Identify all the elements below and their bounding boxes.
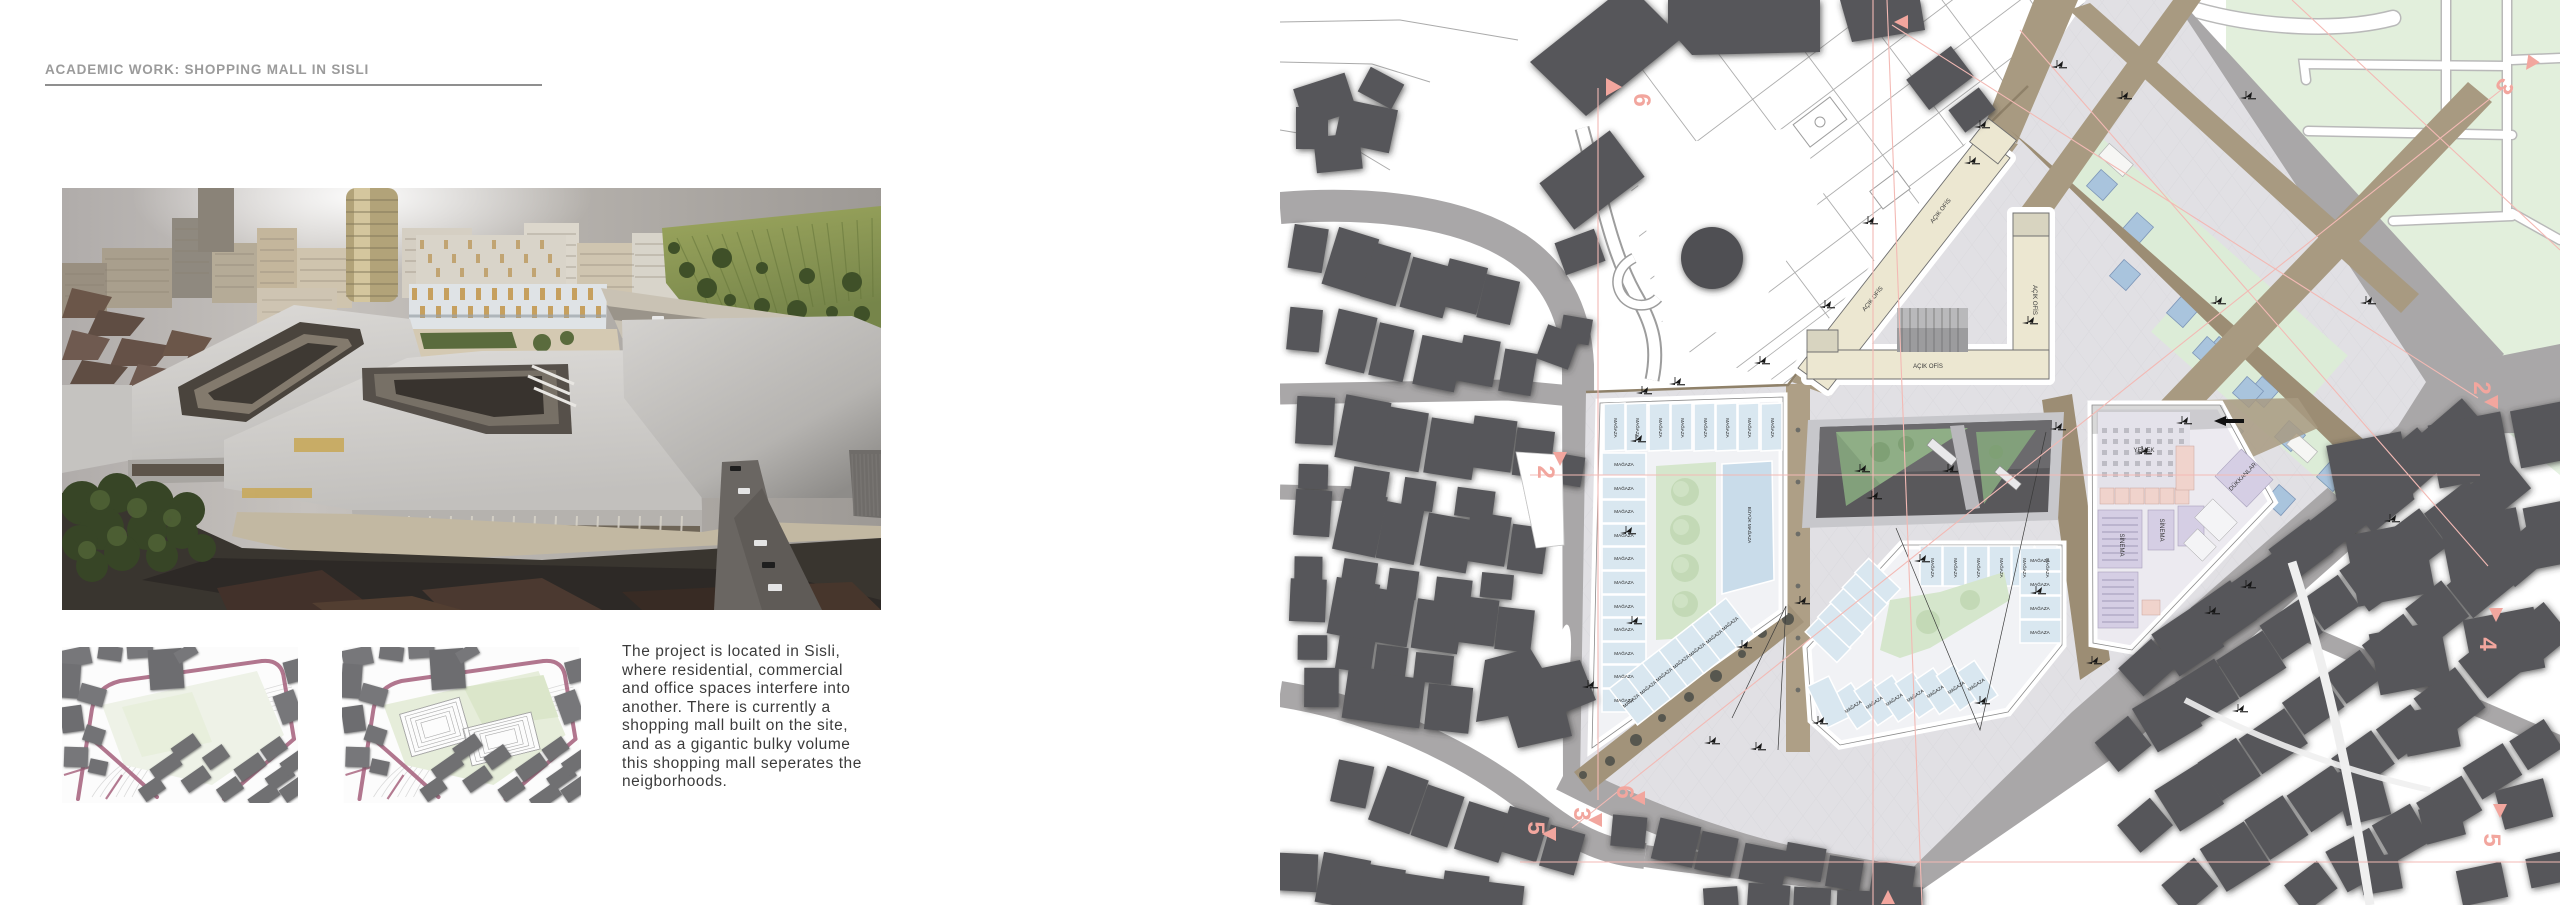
svg-text:4: 4 [2474, 637, 2501, 651]
svg-text:MAĞAZA: MAĞAZA [1680, 418, 1686, 438]
svg-text:AÇIK OFİS: AÇIK OFİS [1913, 363, 1943, 370]
svg-text:3: 3 [1568, 807, 1595, 820]
svg-text:MAĞAZA: MAĞAZA [2030, 557, 2050, 563]
svg-text:MAĞAZA: MAĞAZA [1770, 418, 1776, 438]
svg-text:MAĞAZA: MAĞAZA [1747, 418, 1753, 438]
svg-text:5: 5 [2478, 833, 2505, 846]
svg-text:MAĞAZA: MAĞAZA [1614, 461, 1634, 467]
svg-text:MAĞAZA: MAĞAZA [1930, 558, 1936, 578]
svg-text:5: 5 [1522, 821, 1549, 834]
svg-text:MAĞAZA: MAĞAZA [1976, 558, 1982, 578]
svg-text:MAĞAZA: MAĞAZA [1614, 673, 1634, 679]
svg-text:MAĞAZA: MAĞAZA [1614, 650, 1634, 656]
svg-text:6: 6 [1628, 93, 1655, 106]
svg-text:MAĞAZA: MAĞAZA [1999, 558, 2005, 578]
svg-text:AÇIK OFİS: AÇIK OFİS [2031, 285, 2038, 315]
svg-text:MAĞAZA: MAĞAZA [1953, 558, 1959, 578]
svg-text:MAĞAZA: MAĞAZA [1614, 508, 1634, 514]
svg-text:2: 2 [2468, 381, 2495, 394]
svg-text:MAĞAZA: MAĞAZA [1703, 418, 1709, 438]
svg-text:MAĞAZA: MAĞAZA [2030, 629, 2050, 635]
svg-text:SİNEMA: SİNEMA [2158, 518, 2165, 541]
svg-text:MAĞAZA: MAĞAZA [1614, 626, 1634, 632]
svg-text:MAĞAZA: MAĞAZA [1614, 555, 1634, 561]
svg-text:SİNEMA: SİNEMA [2118, 533, 2125, 556]
svg-text:BÜYÜK MAĞAZA: BÜYÜK MAĞAZA [1747, 507, 1753, 544]
svg-text:MAĞAZA: MAĞAZA [2030, 581, 2050, 587]
svg-text:MAĞAZA: MAĞAZA [2022, 558, 2028, 578]
svg-text:2: 2 [1532, 465, 1559, 478]
svg-text:6: 6 [1611, 785, 1638, 798]
svg-text:MAĞAZA: MAĞAZA [1614, 603, 1634, 609]
svg-text:MAĞAZA: MAĞAZA [1614, 485, 1634, 491]
svg-text:MAĞAZA: MAĞAZA [1614, 579, 1634, 585]
svg-text:MAĞAZA: MAĞAZA [1725, 418, 1731, 438]
svg-text:MAĞAZA: MAĞAZA [2030, 605, 2050, 611]
svg-text:MAĞAZA: MAĞAZA [1658, 418, 1664, 438]
svg-text:MAĞAZA: MAĞAZA [1613, 418, 1619, 438]
